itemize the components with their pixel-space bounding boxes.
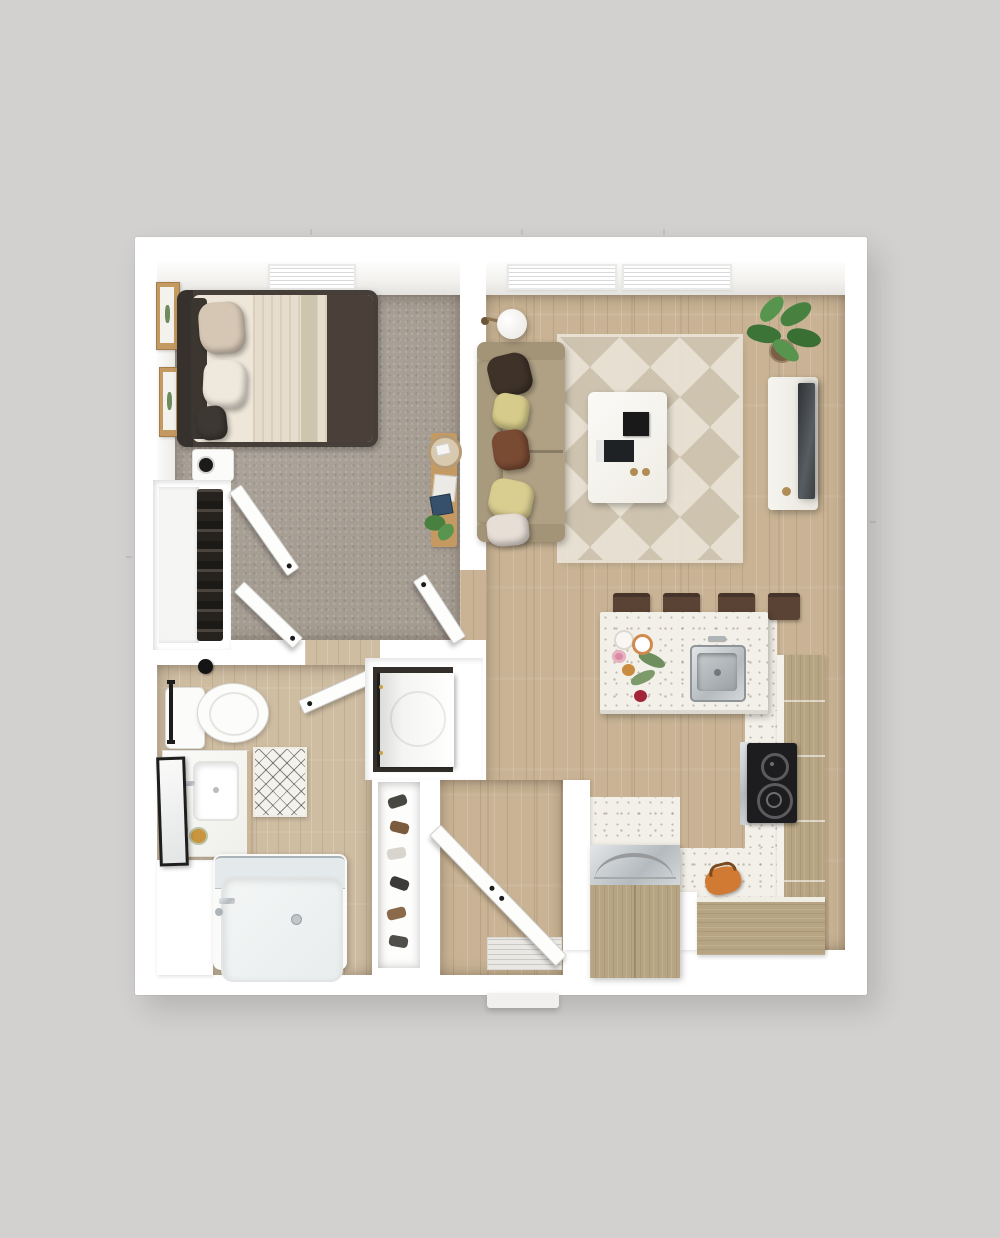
laundry-nook — [365, 658, 483, 780]
cooktop — [747, 743, 797, 823]
cooktop-burner-small — [761, 753, 789, 781]
washer-hinge-dot — [379, 685, 383, 689]
shoe-pair — [389, 820, 410, 835]
bed-blanket-dark — [327, 295, 373, 442]
tub-drain — [291, 914, 302, 925]
tub-faucet — [219, 898, 235, 904]
coffee-table-book-black — [623, 412, 649, 436]
front-door-handle — [488, 885, 495, 892]
bed-pillow — [197, 300, 247, 355]
toilet-seat-ring — [209, 692, 259, 736]
shoe-pair — [389, 875, 411, 892]
towel-bar-cap — [167, 740, 175, 744]
tray-card — [435, 443, 451, 457]
shoe-pair — [387, 793, 408, 809]
dimension-tick — [310, 229, 312, 235]
plate-white — [614, 630, 634, 650]
dimension-tick — [521, 229, 523, 235]
shoe-closet-interior — [378, 782, 420, 968]
toilet-bowl — [197, 683, 269, 743]
door-knob — [420, 581, 427, 588]
coffee-table — [588, 392, 667, 503]
flower-pink — [612, 650, 626, 663]
bedroom-wall-ledge — [431, 433, 457, 547]
fridge-counter-wall — [680, 892, 697, 950]
nightstand — [192, 449, 234, 481]
coffee-table-brass-knob — [642, 468, 650, 476]
kitchen-floor-by-fridge — [590, 797, 680, 848]
tv-console — [768, 377, 818, 510]
floor-lamp-shade — [497, 309, 527, 339]
dimension-tick — [663, 229, 665, 235]
closet-hanging-clothes — [197, 489, 223, 641]
fridge-handle-bar — [594, 877, 676, 879]
toilet — [163, 681, 269, 751]
floor-plan-stage — [0, 0, 1000, 1238]
sofa — [477, 342, 565, 542]
apartment-floor-plan — [135, 237, 867, 995]
floor-lamp — [479, 305, 527, 345]
dimension-tick — [870, 521, 876, 523]
bed-accent-pillow — [195, 405, 228, 442]
fridge-top-steel — [590, 845, 680, 885]
ledge-book-dark — [429, 493, 453, 516]
entry-stoop — [487, 993, 559, 1008]
bathtub-alcove-wall — [157, 860, 213, 975]
washer-front — [377, 673, 454, 767]
sofa-pillow-blush — [486, 512, 531, 548]
wall-plant-pot-black — [198, 659, 213, 674]
counter-shelf-line — [784, 880, 825, 882]
bedroom-window — [268, 264, 356, 290]
coffee-table-book-white — [596, 440, 634, 462]
towel-bar — [169, 683, 173, 741]
vanity-drain — [213, 787, 219, 793]
hall-kitchen-wall — [563, 780, 590, 950]
coffee-table-brass-knob — [630, 468, 638, 476]
flower-red — [634, 690, 647, 702]
wall-art-botanical — [167, 392, 172, 410]
flower-amber — [622, 664, 635, 676]
bed — [177, 290, 378, 447]
sink-drain — [714, 669, 721, 676]
bath-mat — [253, 747, 307, 817]
burner-ring — [766, 792, 782, 808]
plate-orange-ring — [632, 634, 653, 655]
woven-tray — [428, 435, 462, 469]
bar-stool — [768, 593, 800, 620]
leaning-mirror — [156, 757, 189, 867]
tub-basin — [221, 876, 343, 982]
washer-door-ring — [390, 691, 446, 747]
shoe-pair — [386, 846, 407, 860]
vanity-sink — [193, 761, 239, 821]
cooktop-burner-large — [757, 783, 793, 819]
bathtub — [213, 854, 347, 970]
sink-faucet — [708, 636, 726, 641]
shoe-pair — [386, 906, 407, 921]
console-brass-knob — [782, 487, 791, 496]
tub-faucet-handle — [215, 908, 223, 916]
fridge-wood-body — [590, 885, 680, 978]
kitchen-floor-gap-right-of-island — [768, 612, 777, 710]
bed-pillow — [202, 359, 248, 409]
island-flower-arrangement — [610, 628, 670, 702]
bed-blanket-sage-stripe — [301, 295, 317, 442]
bedroom-doorway-threshold — [460, 570, 486, 640]
kitchen-counter-bottom — [697, 897, 825, 955]
front-door-deadbolt — [498, 895, 505, 902]
kitchen-island — [600, 612, 768, 714]
bedroom-closet-nook — [153, 480, 231, 650]
sofa-pillow-rust — [490, 428, 531, 473]
vanity-flowers-amber — [191, 829, 206, 843]
refrigerator — [590, 845, 680, 978]
nightstand-lamp — [199, 458, 213, 472]
washer-hinge-dot — [379, 751, 383, 755]
island-sink — [690, 645, 746, 702]
towel-bar-cap — [167, 680, 175, 684]
burner-center — [770, 762, 774, 766]
door-hinge-dot — [286, 562, 293, 569]
living-window-right — [622, 264, 732, 290]
living-window-left — [507, 264, 617, 290]
fridge-door-seam — [634, 885, 636, 978]
counter-shelf-line — [784, 700, 825, 702]
closet-shelf-side — [159, 487, 199, 643]
door-hinge-dot — [289, 635, 296, 642]
dimension-tick — [126, 556, 132, 558]
door-knob — [306, 700, 313, 707]
wall-art-botanical — [165, 305, 170, 323]
potted-plant-fiddle-leaf — [745, 299, 821, 365]
shoe-pair — [388, 934, 409, 948]
fridge-handle-arc — [595, 853, 673, 879]
tv-screen — [798, 383, 815, 499]
